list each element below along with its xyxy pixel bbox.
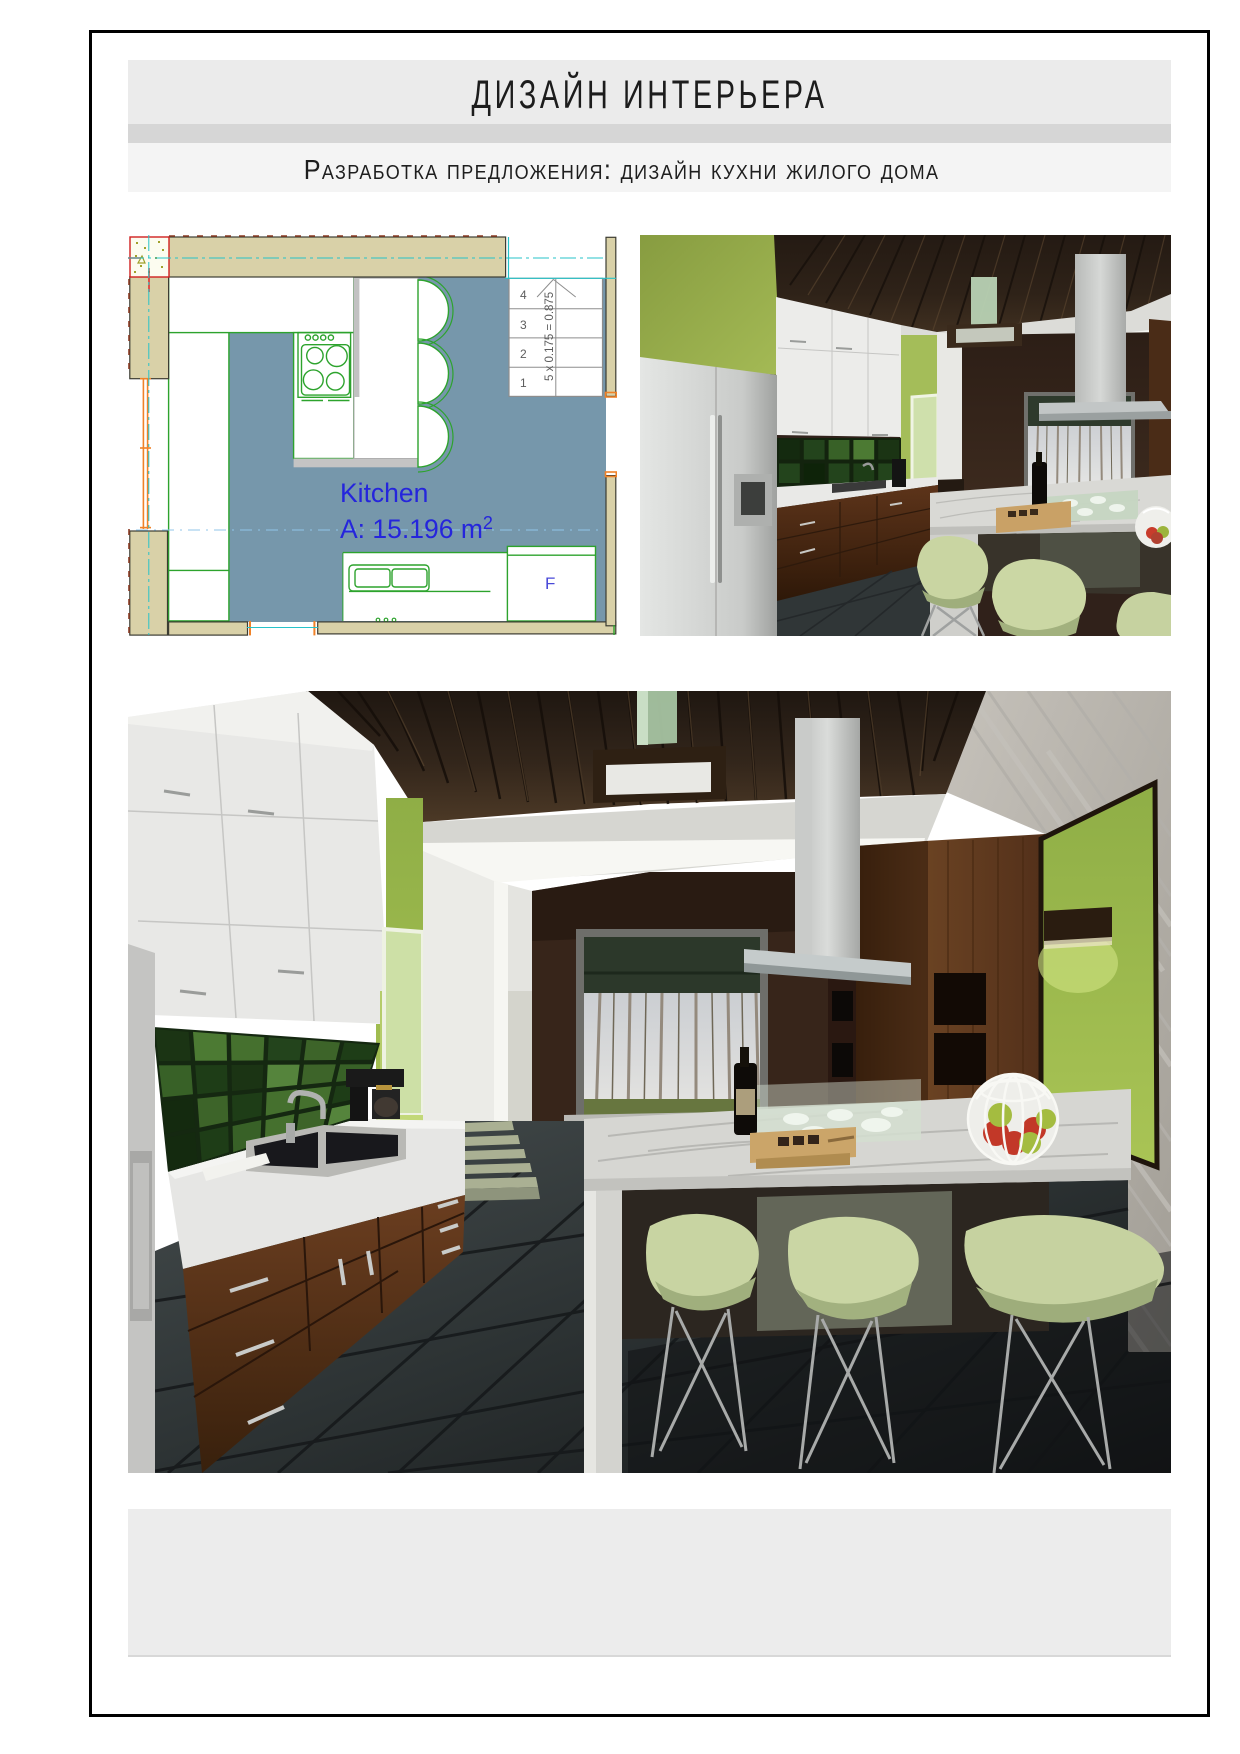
svg-text:A: 15.196 m2: A: 15.196 m2 <box>340 513 493 544</box>
svg-text:1: 1 <box>520 376 527 390</box>
svg-text:2: 2 <box>520 347 527 361</box>
svg-text:4: 4 <box>520 288 527 302</box>
svg-text:Kitchen: Kitchen <box>340 478 428 508</box>
svg-text:3: 3 <box>520 318 527 332</box>
svg-text:F: F <box>545 574 555 593</box>
svg-text:5 x 0.175 = 0.875: 5 x 0.175 = 0.875 <box>544 292 556 381</box>
